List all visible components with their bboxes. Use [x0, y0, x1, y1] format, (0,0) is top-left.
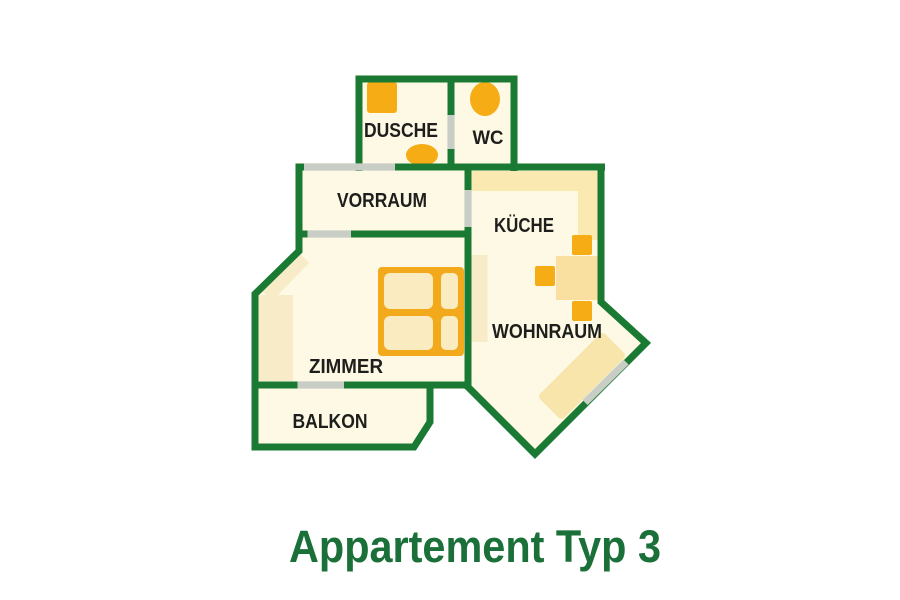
bed-mattress-bottom — [384, 316, 433, 350]
room-label-zimmer: ZIMMER — [309, 356, 384, 378]
chair-bottom — [572, 301, 592, 321]
floorplan-page: DUSCHE WC VORRAUM KÜCHE WOHNRAUM ZIMMER … — [0, 0, 900, 600]
plan-title: Appartement Typ 3 — [289, 521, 661, 572]
floorplan-svg: DUSCHE WC VORRAUM KÜCHE WOHNRAUM ZIMMER … — [0, 0, 900, 600]
room-label-vorraum: VORRAUM — [337, 190, 427, 212]
bed-pillow-bottom — [441, 316, 458, 350]
shower-icon — [367, 82, 397, 113]
room-label-kueche: KÜCHE — [494, 214, 554, 237]
kitchen-counter-right — [578, 191, 598, 240]
bed — [378, 267, 464, 356]
wardrobe-strip — [259, 295, 294, 381]
toilet-icon — [470, 82, 500, 116]
dining-table — [556, 256, 598, 300]
chair-left — [535, 266, 555, 286]
bed-mattress-top — [384, 273, 433, 309]
room-label-wc: WC — [473, 128, 504, 149]
washbasin-icon — [406, 144, 438, 166]
room-label-wohnraum: WOHNRAUM — [492, 321, 602, 343]
cabinet — [472, 255, 488, 342]
kitchen-counter-top — [472, 171, 599, 191]
room-label-balkon: BALKON — [293, 411, 368, 433]
room-label-dusche: DUSCHE — [364, 120, 438, 142]
bed-pillow-top — [441, 273, 458, 309]
chair-top — [572, 235, 592, 255]
